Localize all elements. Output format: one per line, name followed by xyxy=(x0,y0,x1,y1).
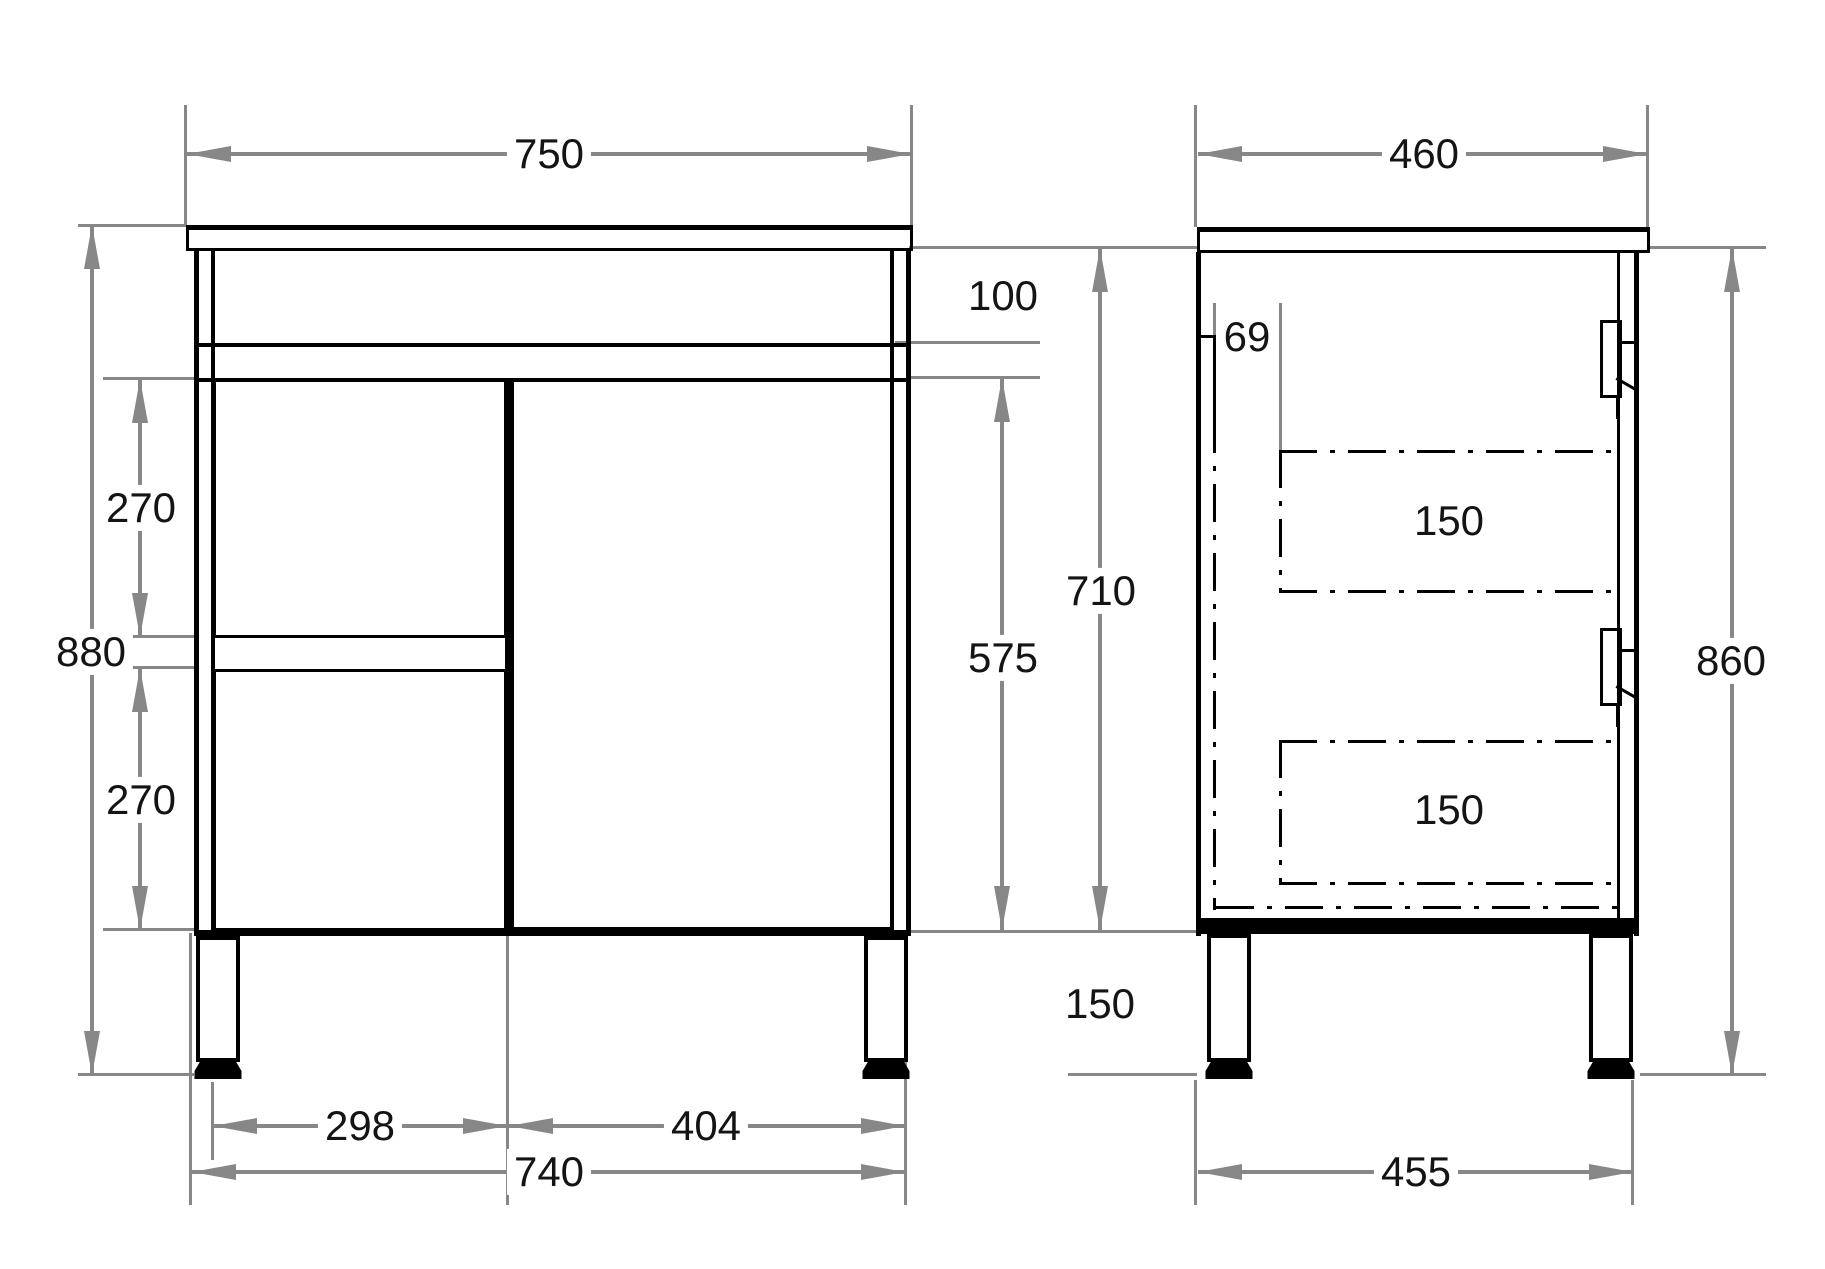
arrow-270a-top xyxy=(132,379,148,423)
front-left-wall-outer xyxy=(194,250,199,936)
side-handle-lower-stub xyxy=(1616,705,1619,727)
front-right-wall-inner xyxy=(890,250,894,936)
side-drawerbox2-bottom xyxy=(1279,882,1617,885)
ext-860-floor xyxy=(1640,1073,1766,1076)
arrow-750-left xyxy=(187,146,231,162)
arrow-860-bottom xyxy=(1724,1031,1740,1075)
front-carcass-bottom xyxy=(194,930,911,936)
ext-575-top xyxy=(909,376,1040,379)
side-hidden-back-line-solid xyxy=(1213,338,1216,415)
dim-label-overall-height: 880 xyxy=(49,629,133,675)
side-drawerbox1-left xyxy=(1279,450,1282,593)
front-right-foot xyxy=(861,1060,911,1079)
dim-label-drawer2-height: 270 xyxy=(99,777,183,823)
ext-270a-top xyxy=(103,377,199,380)
side-front-foot xyxy=(1586,1060,1636,1079)
dim-label-top-rail-height: 100 xyxy=(961,273,1045,319)
side-drawerbox1-bottom xyxy=(1279,590,1617,593)
dim-label-carcass-height: 710 xyxy=(1059,568,1143,614)
ext-floor-mid xyxy=(1068,1073,1197,1076)
ext-270b-bottom xyxy=(103,928,199,931)
arrow-750-right xyxy=(867,146,911,162)
front-drawer1 xyxy=(213,382,507,638)
dim-label-back-clearance: 69 xyxy=(1224,314,1271,360)
side-bottom-panel xyxy=(1196,918,1639,934)
front-top-rail-line xyxy=(199,343,906,347)
arrow-298-left xyxy=(213,1118,257,1134)
arrow-455-right xyxy=(1589,1164,1633,1180)
dim-label-drawer2-depth: 150 xyxy=(1414,787,1484,833)
side-drawerbox2-top xyxy=(1279,740,1617,743)
arrow-460-right xyxy=(1603,146,1647,162)
ext-69-right xyxy=(1279,303,1282,450)
ext-carcass-bottom-shared xyxy=(909,930,1197,933)
side-handle-upper-tick xyxy=(1620,341,1636,344)
dim-label-countertop-depth: 460 xyxy=(1382,131,1466,177)
arrow-740-left xyxy=(192,1164,236,1180)
side-drawerbox2-left xyxy=(1279,740,1282,885)
arrow-575-top xyxy=(994,378,1010,422)
side-bottom-hidden-line xyxy=(1216,906,1617,909)
arrow-455-left xyxy=(1198,1164,1242,1180)
dim-label-leg-span-depth: 455 xyxy=(1374,1149,1458,1195)
dim-label-drawer-bank-width: 298 xyxy=(318,1103,402,1149)
side-back-foot xyxy=(1204,1060,1254,1079)
arrow-270b-bottom xyxy=(132,886,148,930)
arrow-404-left xyxy=(509,1118,553,1134)
front-countertop xyxy=(186,225,913,251)
dim-label-countertop-width-front: 750 xyxy=(507,131,591,177)
ext-455-right xyxy=(1631,1080,1634,1205)
arrow-880-top xyxy=(84,225,100,269)
side-front-leg xyxy=(1589,934,1633,1062)
ext-750-right xyxy=(910,105,913,227)
side-handle-lower xyxy=(1600,628,1622,706)
ext-455-left xyxy=(1194,1080,1197,1205)
arrow-860-top xyxy=(1724,248,1740,292)
side-back-wall xyxy=(1196,252,1201,936)
arrow-740-right xyxy=(861,1164,905,1180)
ext-460-right xyxy=(1646,105,1649,227)
technical-drawing-canvas: 750 100 270 880 270 575 298 404 740 460 … xyxy=(0,0,1825,1269)
dim-label-door-height: 575 xyxy=(961,635,1045,681)
side-front-wall-outer xyxy=(1634,252,1639,936)
dim-label-leg-height: 150 xyxy=(1065,981,1135,1027)
side-handle-lower-tick xyxy=(1620,649,1636,652)
front-right-wall-outer xyxy=(906,250,911,936)
ext-top-shared-left xyxy=(909,246,1197,249)
front-right-leg xyxy=(864,936,908,1062)
ext-750-left xyxy=(184,105,187,227)
dim-label-carcass-width: 740 xyxy=(507,1149,591,1195)
dim-label-door-width: 404 xyxy=(664,1103,748,1149)
arrow-404-right xyxy=(861,1118,905,1134)
arrow-270b-top xyxy=(132,668,148,712)
arrow-710-bottom xyxy=(1092,886,1108,930)
side-handle-upper-stub xyxy=(1616,397,1619,419)
ext-460-left xyxy=(1194,105,1197,227)
dim-label-drawer1-height: 270 xyxy=(99,485,183,531)
arrow-575-bottom xyxy=(994,886,1010,930)
ext-100-bottom xyxy=(895,341,1040,344)
front-left-foot xyxy=(193,1060,243,1079)
side-drawerbox1-top xyxy=(1279,450,1617,453)
side-back-leg xyxy=(1207,934,1251,1062)
arrow-460-left xyxy=(1198,146,1242,162)
arrow-270a-bottom xyxy=(132,593,148,637)
arrow-298-right xyxy=(463,1118,507,1134)
arrow-880-bottom xyxy=(84,1031,100,1075)
arrow-710-top xyxy=(1092,248,1108,292)
side-countertop xyxy=(1197,227,1650,253)
dim-label-height-excluding-top: 860 xyxy=(1689,638,1773,684)
dim-label-drawer1-depth: 150 xyxy=(1414,498,1484,544)
ext-top-shared-right xyxy=(1650,246,1766,249)
front-drawer2 xyxy=(213,669,507,931)
side-handle-upper xyxy=(1600,320,1622,398)
side-hidden-back-line-dash xyxy=(1213,415,1216,910)
front-left-leg xyxy=(196,936,240,1062)
